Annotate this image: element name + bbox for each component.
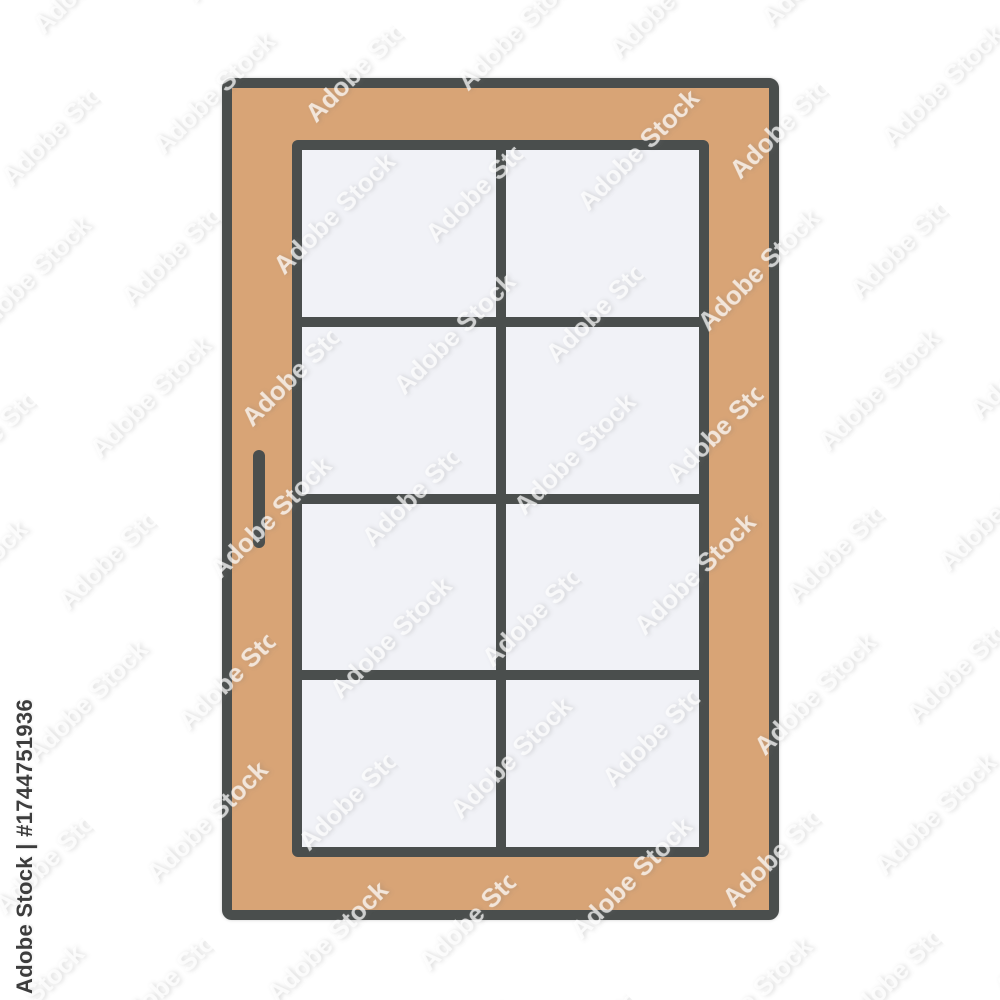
window-pane [302, 150, 496, 317]
window-pane [302, 504, 496, 671]
window-handle [253, 450, 265, 548]
stock-image-canvas: Adobe Stock Adobe Stock Adobe Stock | #1… [0, 0, 1000, 1000]
window-glass-grid [292, 140, 709, 857]
window-pane [506, 327, 700, 494]
window-pane [506, 150, 700, 317]
window-pane [506, 680, 700, 847]
window-pane [506, 504, 700, 671]
watermark-credit: Adobe Stock | #1744751936 [12, 699, 38, 994]
window-pane [302, 680, 496, 847]
window-pane [302, 327, 496, 494]
